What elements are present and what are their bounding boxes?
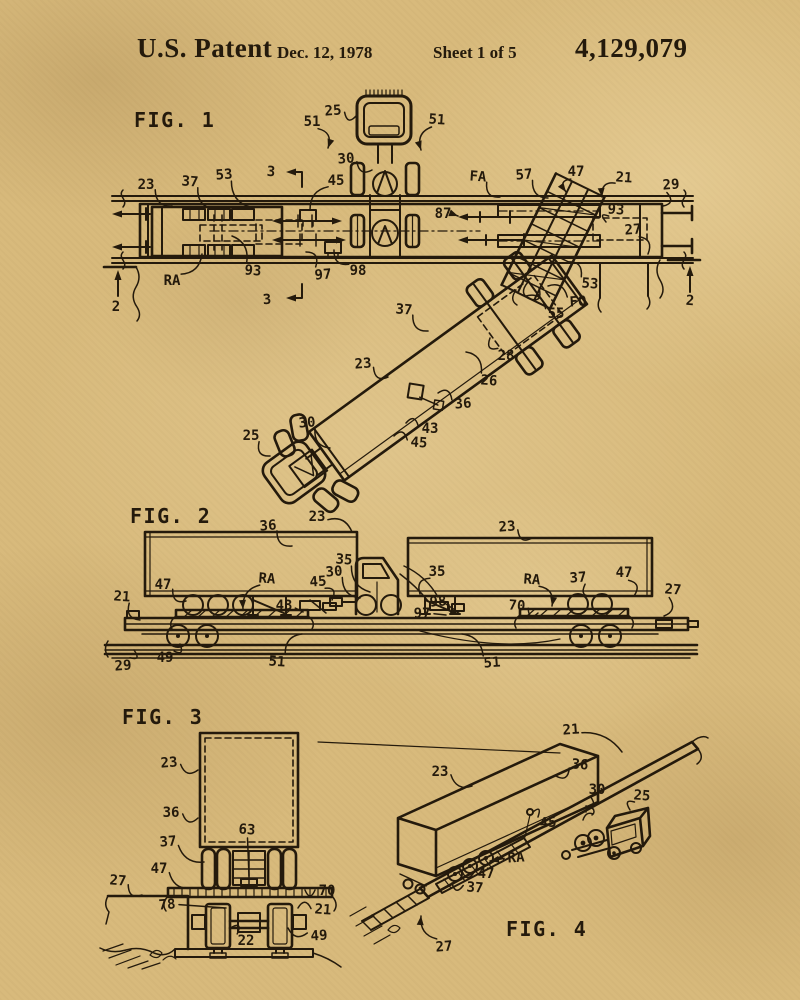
figure-title: FIG. 3 <box>122 705 203 729</box>
reference-label-45: 45 <box>539 814 557 831</box>
reference-label-28: 28 <box>498 348 515 364</box>
reference-label-51: 51 <box>428 111 446 128</box>
reference-label-70: 70 <box>508 597 526 614</box>
reference-label-3: 3 <box>266 164 276 181</box>
figure-title: FIG. 2 <box>130 504 211 528</box>
leader-line <box>306 252 317 267</box>
leader-line <box>169 873 192 889</box>
reference-label-97: 97 <box>414 606 431 622</box>
patent-drawing-canvas: FIG. 12551513023375345FA57472129879327RA… <box>0 0 800 1000</box>
reference-label-30: 30 <box>298 414 316 431</box>
reference-label-55: 55 <box>548 306 565 322</box>
reference-label-51: 51 <box>268 653 286 670</box>
leader-line <box>345 112 356 120</box>
reference-label-RA: RA <box>258 570 277 587</box>
leader-line <box>420 127 432 150</box>
figure-1-drawing: FIG. 12551513023375345FA57472129879327RA… <box>104 90 700 536</box>
leader-line <box>421 916 437 939</box>
reference-label-26: 26 <box>480 372 498 389</box>
reference-label-43: 43 <box>276 598 293 614</box>
leader-line <box>487 182 500 197</box>
reference-label-27: 27 <box>664 581 682 598</box>
reference-label-36: 36 <box>163 805 180 821</box>
leader-line <box>258 442 270 456</box>
reference-label-FO: FO <box>569 293 587 310</box>
trailer-perspective <box>398 744 598 894</box>
reference-label-87: 87 <box>435 206 452 222</box>
leader-arrowhead <box>550 597 557 607</box>
reference-label-21: 21 <box>615 169 633 186</box>
reference-label-30: 30 <box>325 563 343 580</box>
reference-label-97: 97 <box>314 266 332 283</box>
reference-label-35: 35 <box>429 564 446 580</box>
reference-label-2: 2 <box>685 293 695 310</box>
figure-4-drawing: FIG. 4212336453025RA473727 <box>318 721 708 955</box>
reference-label-21: 21 <box>314 901 332 918</box>
figure-1-labels: FIG. 12551513023375345FA57472129879327RA… <box>112 102 695 456</box>
reference-label-37: 37 <box>159 833 177 850</box>
reference-label-22: 22 <box>238 933 255 949</box>
reference-label-27: 27 <box>624 221 642 238</box>
figure-2-drawing: FIG. 23623353047RA4543212949512335RA3747… <box>105 504 698 675</box>
trailer-diagonal <box>245 236 602 536</box>
reference-label-23: 23 <box>160 754 178 771</box>
reference-label-36: 36 <box>259 517 277 534</box>
reference-label-36: 36 <box>454 395 472 412</box>
reference-label-23: 23 <box>138 177 155 193</box>
figure-title: FIG. 1 <box>134 108 215 132</box>
leader-line <box>413 315 428 331</box>
reference-label-29: 29 <box>662 176 680 193</box>
reference-label-47: 47 <box>155 577 172 593</box>
reference-label-53: 53 <box>215 166 233 183</box>
reference-label-45: 45 <box>309 573 327 590</box>
reference-label-70: 70 <box>319 883 336 899</box>
figure-3-labels: FIG. 32336633747277870214922 <box>109 705 335 949</box>
reference-label-RA: RA <box>164 273 181 289</box>
leader-line <box>582 733 622 752</box>
leader-line <box>248 838 250 876</box>
reference-label-27: 27 <box>435 938 453 955</box>
reference-label-47: 47 <box>151 861 168 877</box>
leader-line <box>298 902 311 908</box>
reference-label-21: 21 <box>113 588 131 605</box>
reference-label-37: 37 <box>569 569 587 586</box>
trailer-plan-left <box>152 207 302 256</box>
leader-line <box>663 193 671 207</box>
reference-label-78: 78 <box>158 896 176 913</box>
leader-line <box>583 584 592 596</box>
reference-label-49: 49 <box>310 927 328 944</box>
leader-line <box>181 764 198 773</box>
reference-label-51: 51 <box>304 114 321 130</box>
leader-line <box>310 187 328 210</box>
reference-label-53: 53 <box>581 275 599 292</box>
reference-label-RA: RA <box>523 571 542 588</box>
reference-label-98: 98 <box>350 263 367 279</box>
reference-label-98: 98 <box>429 593 447 610</box>
leader-arrowhead <box>239 600 246 609</box>
reference-label-93: 93 <box>244 262 262 279</box>
leader-line <box>438 390 452 399</box>
reference-label-29: 29 <box>114 657 132 674</box>
figure-title: FIG. 4 <box>506 917 587 941</box>
reference-label-30: 30 <box>337 150 355 167</box>
leader-arrowhead <box>558 183 566 192</box>
leader-line <box>629 580 638 596</box>
reference-label-30: 30 <box>589 782 606 798</box>
leader-line <box>434 614 446 615</box>
leader-line <box>183 814 198 822</box>
reference-label-51: 51 <box>483 654 501 671</box>
patent-sheet: U.S. Patent Dec. 12, 1978 Sheet 1 of 5 4… <box>0 0 800 1000</box>
reference-label-23: 23 <box>432 764 449 780</box>
reference-label-47: 47 <box>616 565 633 581</box>
reference-label-93: 93 <box>607 201 625 218</box>
reference-label-RA: RA <box>507 849 526 866</box>
figure-3-drawing: FIG. 32336633747277870214922 <box>100 705 341 969</box>
reference-label-27: 27 <box>109 872 127 889</box>
leader-line <box>128 885 142 896</box>
reference-label-36: 36 <box>571 756 589 773</box>
leader-line <box>351 566 370 592</box>
reference-label-57: 57 <box>515 166 533 183</box>
reference-label-47: 47 <box>568 164 585 180</box>
reference-label-25: 25 <box>633 787 651 804</box>
leader-line <box>466 352 482 373</box>
leader-arrowhead <box>328 138 335 148</box>
reference-label-23: 23 <box>309 509 326 525</box>
reference-label-23: 23 <box>354 355 372 372</box>
reference-label-49: 49 <box>157 650 174 666</box>
reference-label-37: 37 <box>395 301 413 318</box>
leader-line <box>328 519 352 532</box>
leader-line <box>664 598 673 617</box>
reference-label-37: 37 <box>181 173 199 190</box>
reference-label-37: 37 <box>466 879 484 896</box>
reference-label-21: 21 <box>562 721 580 738</box>
reference-label-23: 23 <box>498 518 516 535</box>
reference-label-25: 25 <box>324 102 342 119</box>
reference-label-63: 63 <box>238 821 256 838</box>
reference-label-2: 2 <box>112 299 120 315</box>
leader-line <box>318 129 329 148</box>
reference-label-FA: FA <box>469 168 488 185</box>
leader-arrowhead <box>415 140 422 150</box>
reference-label-25: 25 <box>243 428 260 444</box>
reference-label-45: 45 <box>328 173 345 189</box>
ramp-platform <box>168 888 332 897</box>
reference-label-3: 3 <box>262 292 272 309</box>
reference-label-45: 45 <box>410 434 428 451</box>
